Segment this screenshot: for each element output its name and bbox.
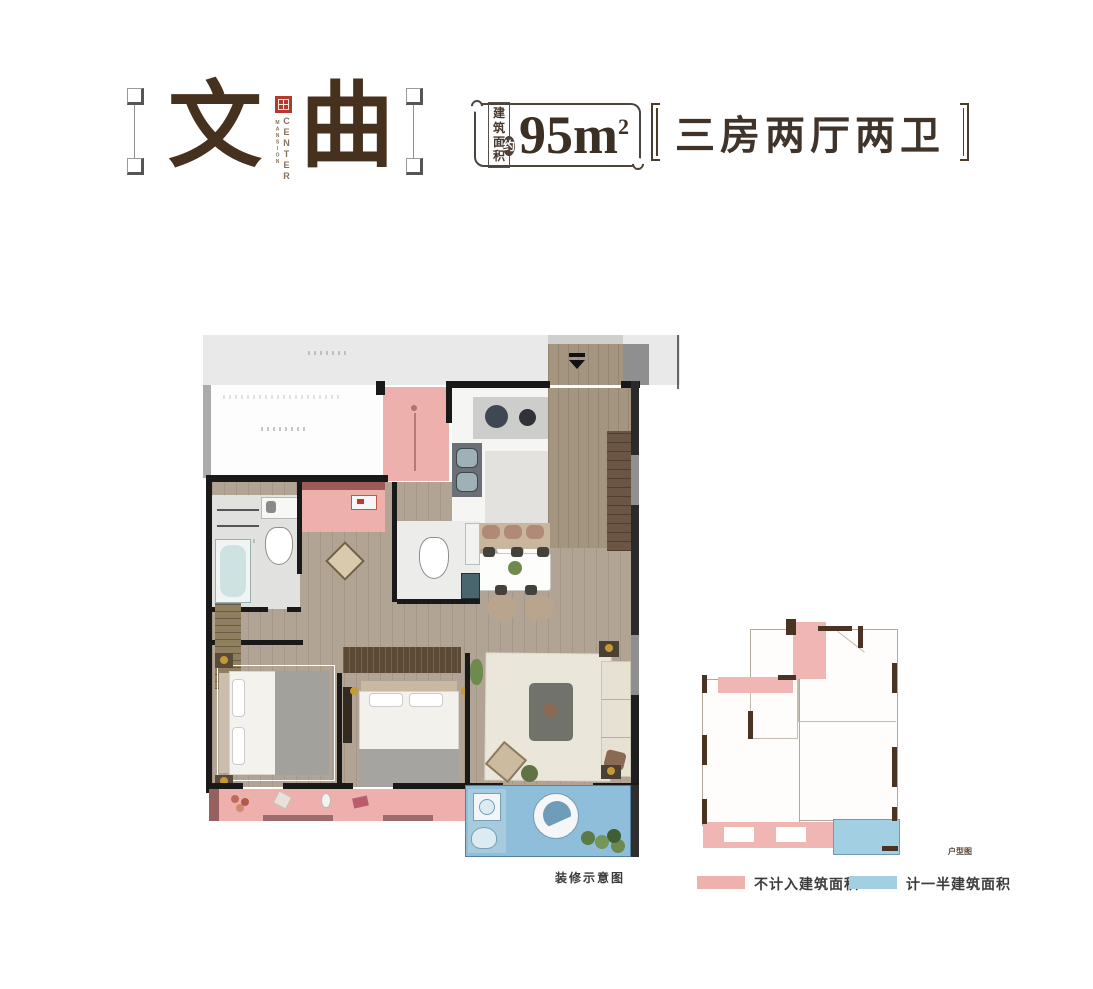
bed2-blanket bbox=[359, 749, 459, 787]
keyplan-inner-line bbox=[798, 721, 896, 722]
seal-icon bbox=[275, 96, 292, 113]
title-ornament-right bbox=[406, 88, 422, 174]
lamp-icon bbox=[220, 656, 228, 664]
pillow-icon bbox=[369, 693, 403, 707]
unit-type-block: 三房两厅两卫 bbox=[651, 100, 969, 164]
platform-pipe-line bbox=[414, 413, 416, 471]
sink-basin-icon bbox=[456, 448, 478, 468]
wall-balcony-right bbox=[631, 785, 639, 857]
balcony-plants-icon bbox=[581, 831, 595, 845]
legend-label-pink: 不计入建筑面积 bbox=[754, 874, 859, 894]
bracket-left-icon bbox=[651, 103, 663, 161]
window-living-right bbox=[631, 635, 639, 695]
balcony-vase-icon bbox=[321, 793, 331, 808]
dining-plant-icon bbox=[508, 561, 522, 575]
bath2-shelf bbox=[465, 523, 480, 565]
vanity-sink-icon bbox=[266, 501, 276, 513]
corridor-end-line bbox=[677, 335, 679, 389]
sink-basin-icon bbox=[456, 472, 478, 492]
bench-cushion bbox=[526, 525, 544, 539]
main-floorplan: 装修示意图 bbox=[203, 335, 683, 895]
platform-pipe-dot bbox=[411, 405, 417, 411]
ornament-square-top bbox=[406, 88, 423, 105]
stove-burner-icon bbox=[519, 409, 536, 426]
bracket-right-icon bbox=[957, 103, 969, 161]
pillow-icon bbox=[232, 727, 245, 765]
seal-pattern bbox=[278, 99, 289, 110]
keyplan-wall bbox=[778, 675, 796, 680]
entry-door-marker-bar bbox=[569, 353, 585, 357]
faint-annotation bbox=[223, 395, 343, 399]
project-title: 文 MANSION CENTER 曲 bbox=[168, 80, 394, 182]
laundry-counter bbox=[300, 482, 385, 490]
equipment-platform bbox=[383, 387, 449, 481]
bed2-headboard bbox=[361, 681, 457, 691]
wall-stub bbox=[376, 381, 385, 395]
corridor-dark-block bbox=[623, 344, 649, 385]
area-label-top: 建筑 bbox=[493, 106, 505, 135]
shower-line bbox=[217, 509, 259, 511]
keyplan-wall bbox=[702, 799, 707, 824]
window-right bbox=[631, 455, 639, 505]
title-ornament-left bbox=[127, 88, 143, 174]
pink-balcony-rail bbox=[383, 815, 433, 821]
bench-cushion bbox=[504, 525, 522, 539]
exterior-void bbox=[207, 387, 383, 478]
ornament-square-top bbox=[127, 88, 144, 105]
wall-right-upper bbox=[631, 381, 639, 455]
pillow-icon bbox=[409, 693, 443, 707]
dining-chair bbox=[537, 547, 549, 557]
entry-cabinet bbox=[607, 431, 631, 551]
area-superscript: 2 bbox=[618, 114, 629, 139]
keyplan-balcony-gap bbox=[776, 827, 806, 842]
entry-door-marker-icon bbox=[569, 360, 585, 369]
plan-caption: 装修示意图 bbox=[555, 869, 625, 886]
balcony-flowers-icon bbox=[231, 795, 239, 803]
lamp-icon bbox=[350, 687, 358, 695]
stove-burner-icon bbox=[485, 405, 508, 428]
keyplan-label: 户型图 bbox=[948, 846, 972, 857]
plant-icon bbox=[470, 659, 483, 685]
wall-bath-bottom bbox=[287, 607, 301, 612]
ornament-square-bottom bbox=[127, 158, 144, 175]
area-value: 95m2 bbox=[519, 108, 629, 162]
exterior-wall-strip bbox=[203, 385, 211, 478]
keyplan-wall bbox=[786, 619, 796, 635]
pillow-icon bbox=[232, 679, 245, 717]
area-number: 95m bbox=[519, 105, 618, 165]
bath2-sink-icon bbox=[461, 573, 480, 599]
keyplan-wall bbox=[882, 846, 898, 851]
round-rug bbox=[525, 595, 555, 621]
lamp-icon bbox=[607, 767, 615, 775]
faint-annotation bbox=[308, 351, 350, 355]
keyplan-wall bbox=[818, 626, 852, 631]
washer-icon bbox=[351, 495, 377, 510]
bed1-blanket bbox=[275, 671, 329, 775]
faint-annotation bbox=[261, 427, 309, 431]
tv-console bbox=[343, 687, 352, 743]
entry-threshold bbox=[548, 335, 623, 344]
keyplan-wall bbox=[892, 807, 897, 821]
key-plan bbox=[690, 617, 908, 859]
toilet-icon bbox=[419, 537, 449, 579]
entry-porch bbox=[548, 344, 623, 385]
brand-center: CENTER bbox=[282, 116, 292, 182]
keyplan-wall bbox=[702, 735, 707, 765]
washer-dot bbox=[357, 499, 364, 504]
dining-chair bbox=[525, 585, 537, 595]
title-char-2: 曲 bbox=[300, 80, 394, 174]
legend-label-blue: 计一半建筑面积 bbox=[906, 874, 1011, 894]
brand-mansion: MANSION bbox=[275, 120, 281, 182]
washer-drum-icon bbox=[479, 799, 495, 815]
pink-balcony-rail bbox=[263, 815, 333, 821]
bathtub-inner bbox=[220, 545, 246, 597]
lamp-icon bbox=[605, 644, 613, 652]
legend: 不计入建筑面积 计一半建筑面积 bbox=[697, 870, 1017, 892]
unit-type-text: 三房两厅两卫 bbox=[675, 103, 945, 161]
sofa-cushion-line bbox=[601, 737, 631, 738]
dining-chair bbox=[495, 585, 507, 595]
approx-circle: 约 bbox=[503, 136, 515, 156]
bench-cushion bbox=[482, 525, 500, 539]
keyplan-wall bbox=[748, 711, 753, 739]
dryer-icon bbox=[471, 827, 497, 849]
bed1-headboard bbox=[219, 673, 229, 773]
brand-column: MANSION CENTER bbox=[268, 96, 298, 182]
plant-icon bbox=[521, 765, 538, 782]
area-badge: 建筑 面积 约 95m2 bbox=[474, 103, 641, 167]
sofa-cushion-line bbox=[601, 699, 631, 700]
ornament-square-bottom bbox=[406, 158, 423, 175]
wall-bath-right bbox=[297, 482, 302, 574]
keyplan-balcony-gap bbox=[724, 827, 754, 842]
wall-bath2-bottom bbox=[397, 599, 480, 604]
keyplan-balcony-pink bbox=[703, 822, 833, 848]
keyplan-wall bbox=[858, 626, 863, 648]
dining-chair bbox=[511, 547, 523, 557]
keyplan-wall bbox=[702, 675, 707, 693]
pink-balcony-wall bbox=[209, 789, 219, 821]
dining-chair bbox=[483, 547, 495, 557]
wall-right-mid bbox=[631, 505, 639, 635]
toilet-icon bbox=[265, 527, 293, 565]
bedroom2-shelf bbox=[343, 647, 461, 673]
wall-left-wing-top bbox=[206, 475, 388, 482]
shower-line bbox=[217, 525, 259, 527]
keyplan-wall bbox=[892, 663, 897, 693]
round-rug bbox=[487, 595, 517, 621]
coffee-table-decor bbox=[543, 703, 557, 717]
wall-bedrooms-divider bbox=[337, 673, 342, 787]
kitchen-island bbox=[485, 451, 548, 523]
legend-swatch-blue bbox=[849, 876, 897, 889]
poster: 文 MANSION CENTER 曲 建筑 面积 约 95m2 三房两厅两卫 bbox=[0, 0, 1093, 989]
area-badge-label: 建筑 面积 bbox=[488, 102, 510, 168]
title-char-1: 文 bbox=[168, 80, 262, 174]
legend-swatch-pink bbox=[697, 876, 745, 889]
wall-living-right bbox=[631, 695, 639, 787]
keyplan-wall bbox=[892, 747, 897, 787]
